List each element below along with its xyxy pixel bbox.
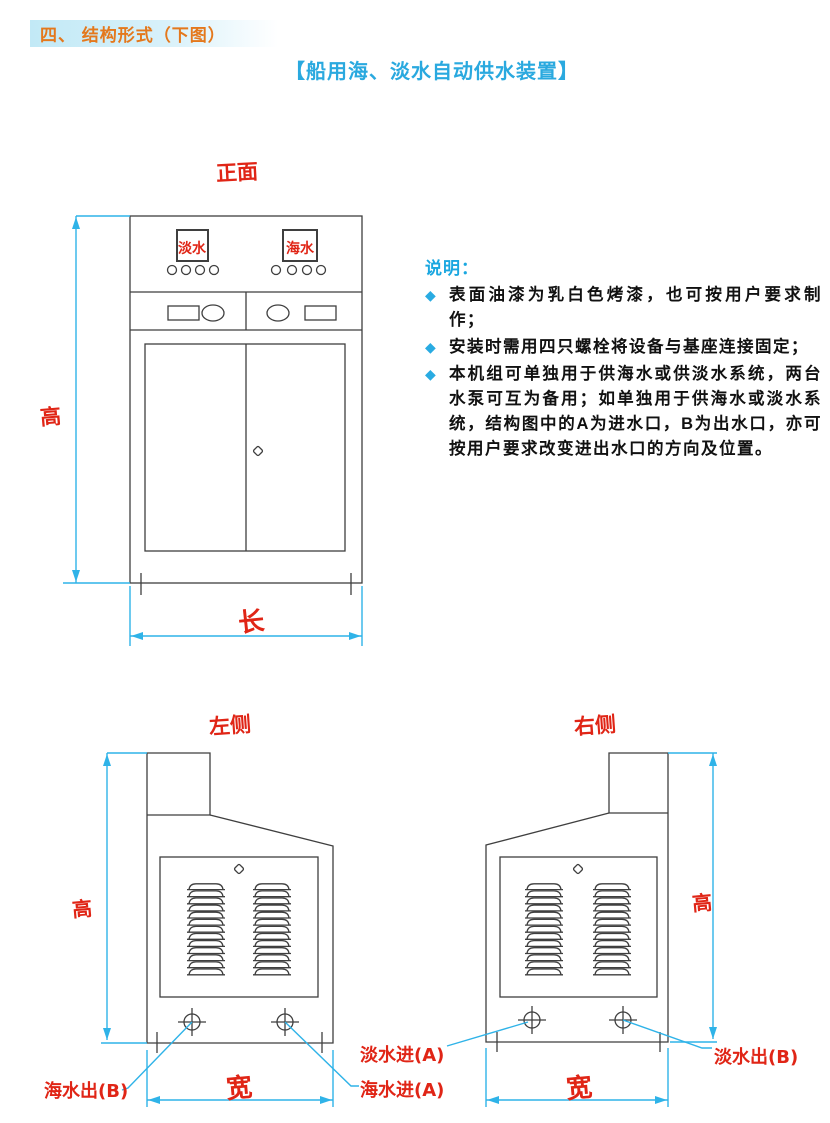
right-height-label: 高 [691,890,713,916]
front-length-dimension: 长 [130,586,362,646]
seawater-panel-label: 海水 [286,240,315,257]
louver-vent [253,884,291,975]
right-width-dimension: 宽 [486,1048,668,1107]
freshwater-panel-label: 淡水 [178,240,207,257]
front-height-dimension: 高 [39,216,130,583]
front-view-drawing: 正面 淡水 海水 [39,160,362,646]
left-height-label: 高 [71,896,93,922]
left-height-dimension: 高 [71,753,147,1043]
front-view-label: 正面 [215,160,258,186]
seawater-inlet-label: 海水进(A) [360,1079,444,1101]
left-vent-panel [160,857,318,997]
control-section [168,305,336,321]
document-page: 四、 结构形式（下图） 【船用海、淡水自动供水装置】 说明： ◆ 表面油漆为乳白… [0,0,830,1123]
front-height-label: 高 [39,404,62,430]
double-doors [145,344,345,551]
freshwater-inlet-label: 淡水进(A) [360,1044,444,1066]
louver-vent [593,884,631,975]
cabinet-left-outline [147,753,333,1053]
right-side-view-drawing: 右侧 高 [360,712,798,1107]
front-length-label: 长 [237,606,267,639]
panel-lock-icon [234,864,244,874]
louver-vent [525,884,563,975]
right-view-label: 右侧 [573,712,617,739]
left-view-label: 左侧 [208,712,252,739]
freshwater-inlet-port [518,1006,546,1034]
cabinet-right-outline [486,753,668,1052]
panel-lock-icon [573,864,583,874]
freshwater-outlet-label: 淡水出(B) [714,1046,798,1068]
right-width-label: 宽 [565,1072,594,1105]
left-width-label: 宽 [225,1072,254,1105]
seawater-outlet-label: 海水出(B) [44,1080,128,1102]
louver-vent [187,884,225,975]
right-vent-panel [500,857,657,997]
port-leader-lines-right-view [447,1020,712,1048]
indicator-panel-seawater: 海水 [272,230,326,275]
indicator-panel-freshwater: 淡水 [168,230,219,275]
technical-drawing-canvas: 正面 淡水 海水 [0,0,830,1123]
left-width-dimension: 宽 [147,1050,333,1107]
door-lock-icon [253,446,263,456]
right-height-dimension: 高 [668,753,717,1042]
